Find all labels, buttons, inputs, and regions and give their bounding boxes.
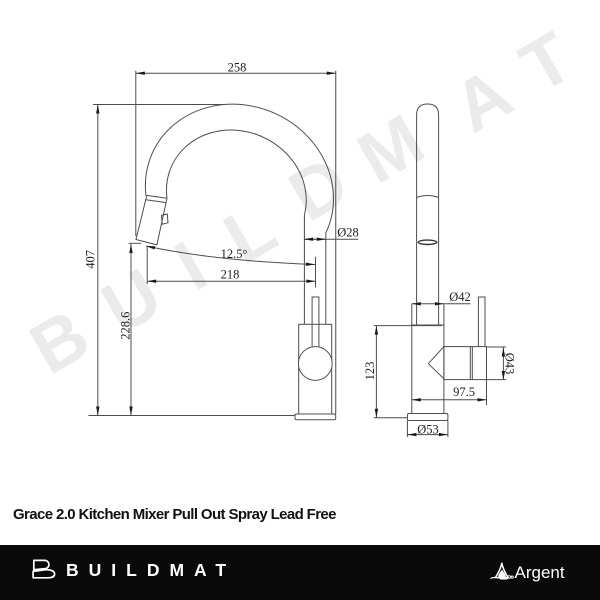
svg-text:BUILDMAT: BUILDMAT xyxy=(66,560,236,580)
svg-text:Argent: Argent xyxy=(515,563,565,582)
